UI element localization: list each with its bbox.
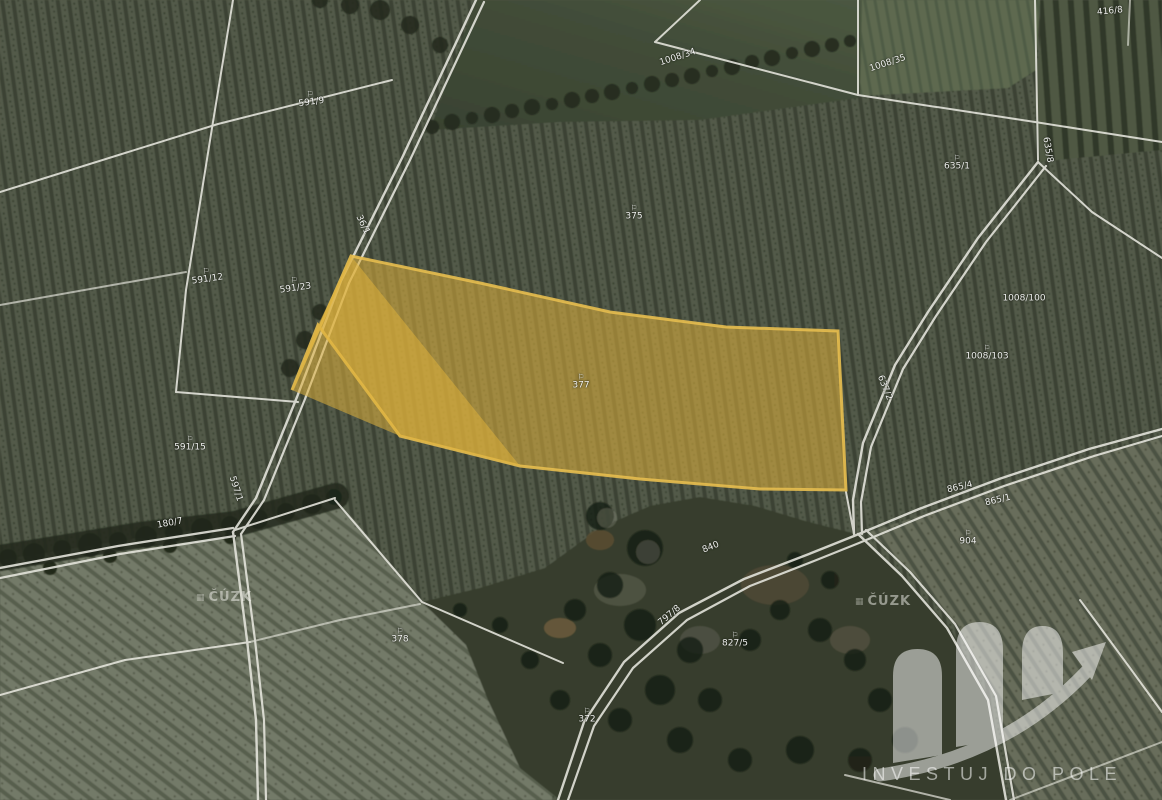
brand-logo-text: INVESTUJ DO POLE (862, 764, 1122, 784)
aerial-map-image: INVESTUJ DO POLE ▦ ČÚZK ▦ ČÚZK ⚐591/9⚐59… (0, 0, 1162, 800)
map-canvas: INVESTUJ DO POLE (0, 0, 1162, 800)
cadastre-watermark-icon: ▦ (855, 597, 865, 607)
cadastre-watermark: ▦ ČÚZK (196, 590, 252, 605)
cadastre-watermark: ▦ ČÚZK (855, 594, 911, 609)
cadastre-watermark-icon: ▦ (196, 593, 206, 603)
